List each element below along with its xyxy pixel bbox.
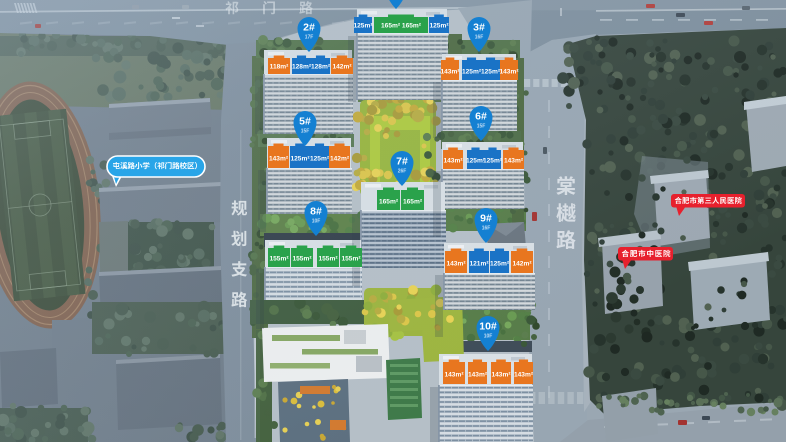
svg-text:6#: 6# [475, 111, 487, 123]
svg-text:17F: 17F [305, 34, 314, 40]
svg-text:121m²: 121m² [469, 261, 489, 268]
svg-text:125m²: 125m² [490, 261, 510, 268]
svg-text:2#: 2# [303, 22, 315, 34]
svg-text:143m²: 143m² [269, 156, 289, 163]
svg-text:10#: 10# [479, 321, 497, 333]
svg-text:9#: 9# [480, 213, 492, 225]
svg-text:155m²: 155m² [341, 256, 361, 263]
svg-text:128m²: 128m² [292, 64, 312, 71]
svg-text:165m²: 165m² [379, 198, 399, 205]
svg-text:125m²: 125m² [310, 156, 330, 163]
svg-text:125m²: 125m² [290, 156, 310, 163]
svg-text:143m²: 143m² [446, 261, 466, 268]
svg-text:143m²: 143m² [443, 158, 463, 165]
svg-text:125m²: 125m² [481, 68, 501, 75]
svg-text:143m²: 143m² [499, 68, 519, 75]
svg-text:125m²: 125m² [353, 23, 373, 30]
svg-text:143m²: 143m² [514, 372, 534, 379]
svg-text:165m²: 165m² [403, 198, 423, 205]
svg-text:15F: 15F [301, 128, 310, 134]
svg-text:8#: 8# [310, 206, 322, 218]
svg-text:143m²: 143m² [491, 372, 511, 379]
svg-text:3#: 3# [473, 22, 485, 34]
svg-text:125m²: 125m² [462, 68, 482, 75]
svg-text:143m²: 143m² [504, 158, 524, 165]
svg-text:26F: 26F [398, 168, 407, 174]
svg-text:142m²: 142m² [332, 64, 352, 71]
svg-text:15F: 15F [477, 123, 486, 129]
svg-text:165m² 165m²: 165m² 165m² [381, 23, 422, 30]
svg-text:155m²: 155m² [292, 256, 312, 263]
svg-text:142m²: 142m² [512, 261, 532, 268]
svg-text:125m²: 125m² [483, 158, 503, 165]
svg-text:16F: 16F [475, 34, 484, 40]
svg-text:10F: 10F [484, 333, 493, 339]
svg-text:155m²: 155m² [269, 256, 289, 263]
svg-text:143m²: 143m² [444, 372, 464, 379]
svg-text:10F: 10F [312, 218, 321, 224]
svg-text:155m²: 155m² [318, 256, 338, 263]
svg-text:118m²: 118m² [270, 64, 290, 71]
svg-text:5#: 5# [299, 116, 311, 128]
svg-text:143m²: 143m² [440, 68, 460, 75]
svg-text:16F: 16F [482, 225, 491, 231]
svg-text:125m²: 125m² [429, 23, 449, 30]
svg-text:128m²: 128m² [311, 64, 331, 71]
svg-text:7#: 7# [396, 156, 408, 168]
svg-text:143m²: 143m² [468, 372, 488, 379]
svg-text:142m²: 142m² [330, 156, 350, 163]
